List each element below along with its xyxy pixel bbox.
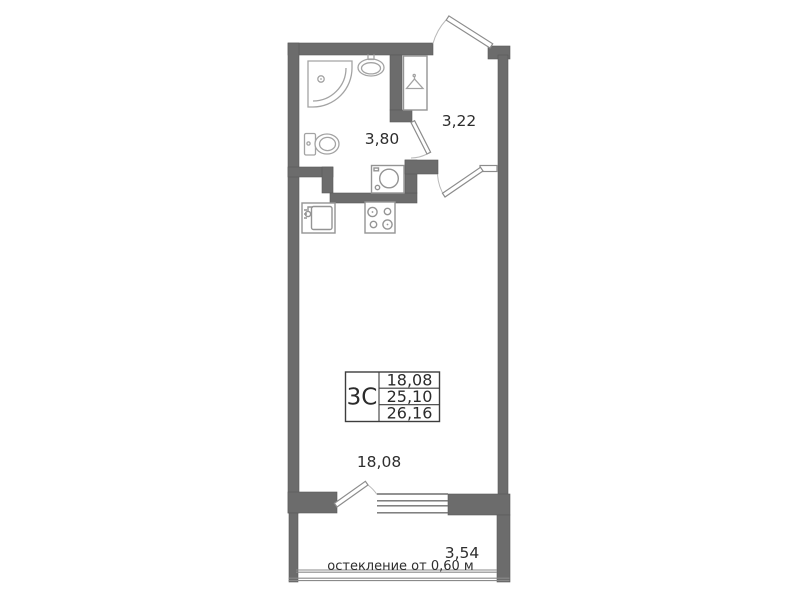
bathroom-area-label: 3,80 [365,130,400,148]
washing-machine-icon [372,166,405,194]
hanger-icon [407,74,424,88]
wall-top [288,43,433,55]
entrance-door-leaf-icon [446,16,493,48]
wall-bathroom-right [390,55,402,110]
entrance-door [433,16,493,48]
living-room-area-label: 18,08 [357,453,401,471]
floor-plan-svg: 3,80 3,22 18,08 3,54 остекление от 0,60 … [0,0,799,600]
wall-balcony-right [497,515,510,582]
room-door-leaf-icon [443,167,484,197]
wall-bottom-right-block [448,494,510,515]
kitchen-sink-icon [302,203,335,233]
bath-sink-icon [358,55,384,77]
shower-icon [308,61,352,107]
balcony-glazing-note: остекление от 0,60 м [327,559,473,574]
unit-area-row-3: 26,16 [387,404,433,423]
window [377,494,448,513]
wall-bottom-left-block [288,492,337,513]
entrance-door-swing-arc [433,20,446,44]
wall-closet-stub [390,110,412,122]
unit-info-table: 3С 18,08 25,10 26,16 [346,371,440,423]
unit-type-cell: 3С [347,385,378,411]
wardrobe-outline [404,56,428,110]
floor-plan: 3,80 3,22 18,08 3,54 остекление от 0,60 … [0,0,799,600]
hall-area-label: 3,22 [442,112,477,130]
wardrobe-niche [404,56,428,110]
kitchen-fixtures [302,202,395,233]
wall-duct-stub [322,167,333,193]
stove-icon [365,202,395,233]
room-door [438,166,498,198]
balcony-door [334,481,377,507]
balcony-door-leaf-icon [334,481,368,507]
bathroom-door-leaf-icon [411,121,431,154]
bathroom-door [411,121,431,158]
toilet-icon [305,134,340,156]
wall-right [498,55,508,515]
wall-left [288,43,299,513]
wall-hall-bottom [405,160,438,174]
